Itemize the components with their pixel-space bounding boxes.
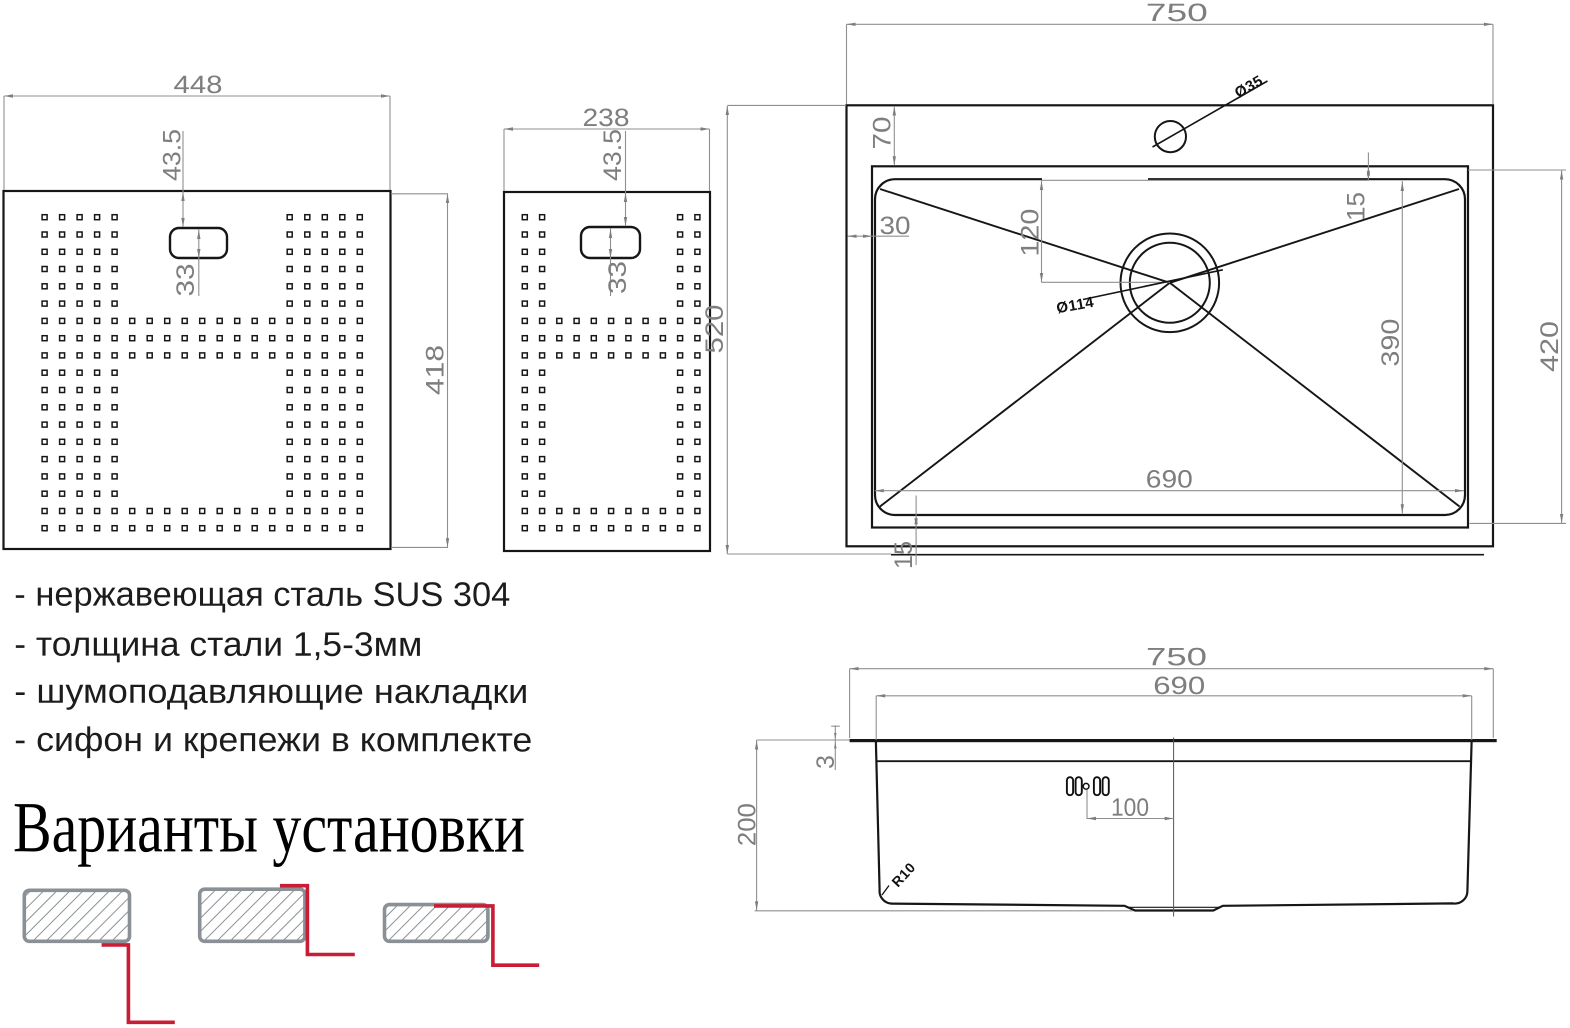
svg-text:448: 448 — [173, 71, 222, 99]
svg-text:33: 33 — [604, 261, 632, 294]
svg-text:- толщина стали 1,5-3мм: - толщина стали 1,5-3мм — [14, 626, 422, 664]
svg-text:43.5: 43.5 — [159, 129, 187, 181]
svg-text:Ø114: Ø114 — [1055, 294, 1095, 317]
svg-text:420: 420 — [1536, 321, 1564, 372]
svg-text:120: 120 — [1016, 209, 1044, 257]
svg-text:15: 15 — [1343, 192, 1371, 221]
svg-text:3: 3 — [812, 755, 840, 769]
svg-text:418: 418 — [422, 345, 450, 395]
svg-text:690: 690 — [1146, 465, 1193, 493]
svg-text:100: 100 — [1111, 794, 1149, 822]
svg-text:Варианты установки: Варианты установки — [13, 787, 525, 867]
svg-text:43.5: 43.5 — [599, 129, 627, 181]
svg-text:200: 200 — [733, 803, 761, 846]
svg-text:390: 390 — [1377, 319, 1405, 367]
svg-text:750: 750 — [1146, 0, 1208, 27]
svg-text:R10: R10 — [888, 859, 918, 890]
svg-text:690: 690 — [1153, 672, 1205, 700]
svg-text:238: 238 — [582, 104, 629, 132]
svg-text:33: 33 — [172, 264, 200, 297]
svg-text:Ø35: Ø35 — [1232, 72, 1266, 101]
svg-text:- нержавеющая сталь SUS 304: - нержавеющая сталь SUS 304 — [14, 576, 510, 614]
svg-text:- шумоподавляющие накладки: - шумоподавляющие накладки — [14, 673, 528, 711]
svg-text:30: 30 — [879, 212, 910, 240]
svg-text:750: 750 — [1146, 643, 1207, 671]
svg-text:- сифон и крепежи в комплекте: - сифон и крепежи в комплекте — [14, 721, 532, 759]
svg-text:70: 70 — [869, 117, 897, 150]
svg-text:520: 520 — [701, 305, 729, 354]
svg-text:15: 15 — [890, 541, 918, 569]
